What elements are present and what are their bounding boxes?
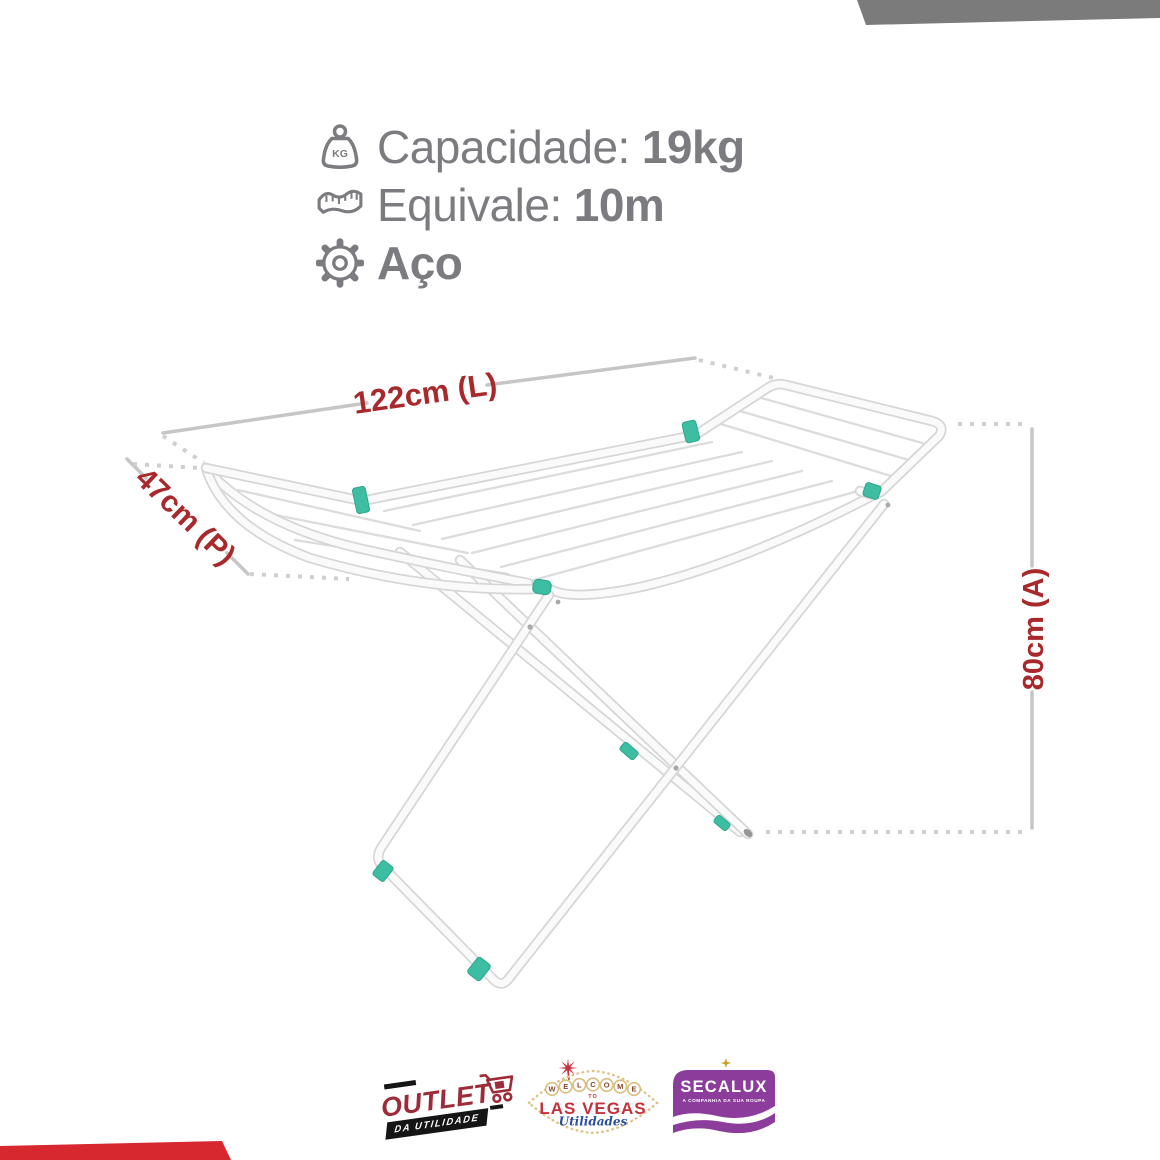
dimension-height: 80cm (A): [766, 424, 1050, 832]
welcome-letter: E: [631, 1085, 636, 1094]
equivalent-label: Equivale:: [377, 178, 562, 232]
secalux-logo: SECALUX A COMPANHIA DA SUA ROUPA: [665, 1055, 780, 1140]
top-right-corner-band: [857, 0, 1160, 25]
equivalent-value: 10m: [574, 178, 665, 232]
capacity-value: 19kg: [642, 120, 745, 174]
welcome-letter: L: [577, 1081, 582, 1090]
weight-icon-text: KG: [332, 148, 348, 160]
welcome-letter: W: [548, 1085, 556, 1094]
weight-kg-icon: KG: [316, 122, 364, 172]
welcome-letter: E: [563, 1082, 568, 1091]
welcome-letter: M: [617, 1082, 623, 1091]
height-label: 80cm (A): [1018, 568, 1050, 691]
outlet-logo: OUTLET DA UTILIDADE: [378, 1072, 528, 1142]
tape-measure-icon: [316, 180, 364, 230]
drying-wires: [238, 396, 926, 581]
outlet-dash-small: [490, 1104, 503, 1110]
welcome-letter: O: [604, 1081, 610, 1090]
hinge-clip-icon: [352, 486, 370, 514]
shopping-cart-icon: [477, 1064, 522, 1109]
welcome-letter: C: [590, 1080, 596, 1089]
spec-equivalent: Equivale: 10m: [316, 176, 745, 234]
secalux-name-text: SECALUX: [680, 1078, 767, 1096]
wing-hinge-clips: [352, 420, 882, 982]
length-label: 122cm (L): [351, 366, 499, 421]
spec-material: Aço: [316, 234, 745, 292]
capacity-label: Capacidade:: [377, 120, 630, 174]
bottom-left-corner-band: [0, 1141, 231, 1160]
secalux-tagline-text: A COMPANHIA DA SUA ROUPA: [683, 1098, 766, 1103]
material-value: Aço: [377, 236, 462, 290]
depth-label: 47cm (P): [129, 461, 242, 572]
las-vegas-logo: W E L C O M E TO LAS VEGAS Utilidades: [523, 1056, 663, 1151]
vegas-script-text: Utilidades: [559, 1115, 628, 1129]
spec-list: KG Capacidade: 19kg Equivale: 10m: [316, 118, 745, 292]
gear-icon: [316, 238, 364, 288]
spec-capacity: KG Capacidade: 19kg: [316, 118, 745, 176]
tube-cap-icon: [532, 579, 552, 596]
sparkle-icon: [721, 1058, 731, 1068]
